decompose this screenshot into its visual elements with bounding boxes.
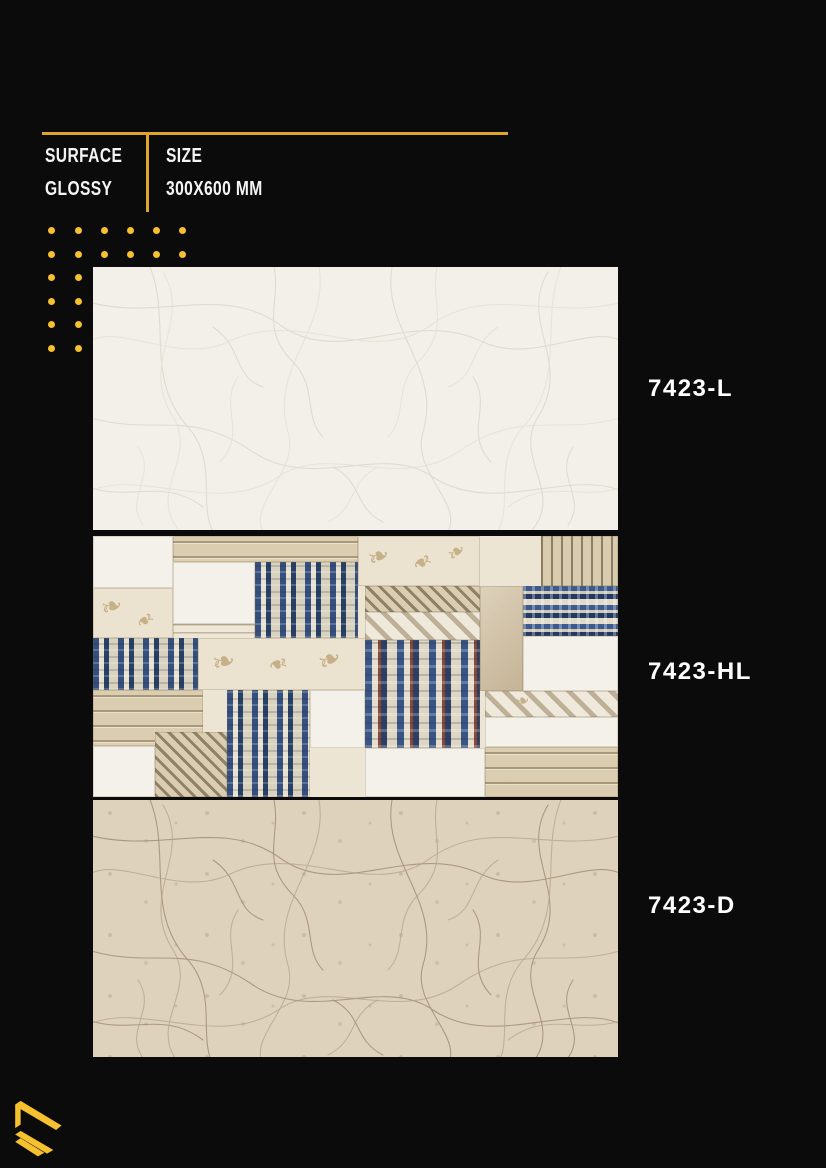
tile-patch — [485, 717, 618, 747]
dot — [179, 227, 186, 234]
size-label: SIZE — [166, 140, 263, 173]
tile-patch — [310, 690, 365, 748]
dot — [101, 251, 108, 258]
marble-veins — [93, 800, 618, 1057]
tile-patch — [173, 562, 255, 624]
tile-image-7423-hl: ❧ ❧ ❧ ❧ ❧ ❧ ❧ ❧ ❧ — [93, 536, 618, 797]
damask-flourish-icon: ❧ — [130, 605, 158, 634]
tile-patch — [365, 748, 485, 797]
product-code-label: 7423-D — [648, 892, 736, 920]
tile-patch: ❧ — [485, 691, 618, 717]
tile-patch — [541, 536, 618, 586]
damask-flourish-icon: ❧ — [265, 649, 292, 678]
marble-veins — [93, 267, 618, 530]
dot — [179, 251, 186, 258]
damask-flourish-icon: ❧ — [209, 645, 239, 678]
damask-flourish-icon: ❧ — [443, 539, 471, 568]
tile-patch — [365, 640, 480, 748]
dot — [127, 251, 134, 258]
tile-patch — [227, 690, 310, 797]
surface-label: SURFACE — [45, 140, 122, 173]
tile-patch — [173, 536, 358, 562]
damask-flourish-icon: ❧ — [512, 691, 532, 713]
product-row-7423-d: 7423-D — [0, 800, 826, 1057]
brand-chevron-logo-icon — [8, 1100, 66, 1160]
product-row-7423-hl: ❧ ❧ ❧ ❧ ❧ ❧ ❧ ❧ ❧ — [0, 536, 826, 797]
product-row-7423-l: 7423-L — [0, 267, 826, 530]
damask-flourish-icon: ❧ — [364, 541, 395, 574]
product-code-label: 7423-L — [648, 375, 733, 403]
damask-flourish-icon: ❧ — [313, 642, 347, 678]
tile-patch — [365, 612, 480, 640]
divider-vertical — [146, 135, 149, 212]
tile-patch: ❧ ❧ ❧ — [358, 536, 480, 586]
tile-image-7423-d — [93, 800, 618, 1057]
damask-flourish-icon: ❧ — [407, 546, 437, 577]
surface-value: GLOSSY — [45, 173, 122, 206]
tile-patch: ❧ ❧ — [93, 588, 173, 638]
size-value: 300X600 MM — [166, 173, 263, 206]
surface-spec: SURFACE GLOSSY — [45, 140, 144, 206]
tile-patch — [523, 586, 618, 636]
tile-patch — [155, 732, 227, 797]
dot — [75, 227, 82, 234]
dot — [48, 251, 55, 258]
damask-flourish-icon: ❧ — [97, 591, 126, 623]
dot — [153, 227, 160, 234]
dot — [48, 227, 55, 234]
dot — [127, 227, 134, 234]
divider-horizontal — [42, 132, 508, 135]
tile-patch — [480, 586, 523, 691]
product-code-label: 7423-HL — [648, 658, 752, 686]
tile-image-7423-l — [93, 267, 618, 530]
tile-patch — [485, 747, 618, 797]
tile-patch — [93, 638, 198, 690]
size-spec: SIZE 300X600 MM — [166, 140, 290, 206]
tile-patch — [523, 636, 618, 691]
tile-patch — [255, 562, 358, 638]
tile-patch — [93, 746, 155, 797]
dot — [153, 251, 160, 258]
catalog-page: SURFACE GLOSSY SIZE 300X600 MM — [0, 0, 826, 1168]
tile-patch — [93, 536, 173, 588]
dot — [101, 227, 108, 234]
dot — [75, 251, 82, 258]
tile-patch — [365, 586, 480, 612]
